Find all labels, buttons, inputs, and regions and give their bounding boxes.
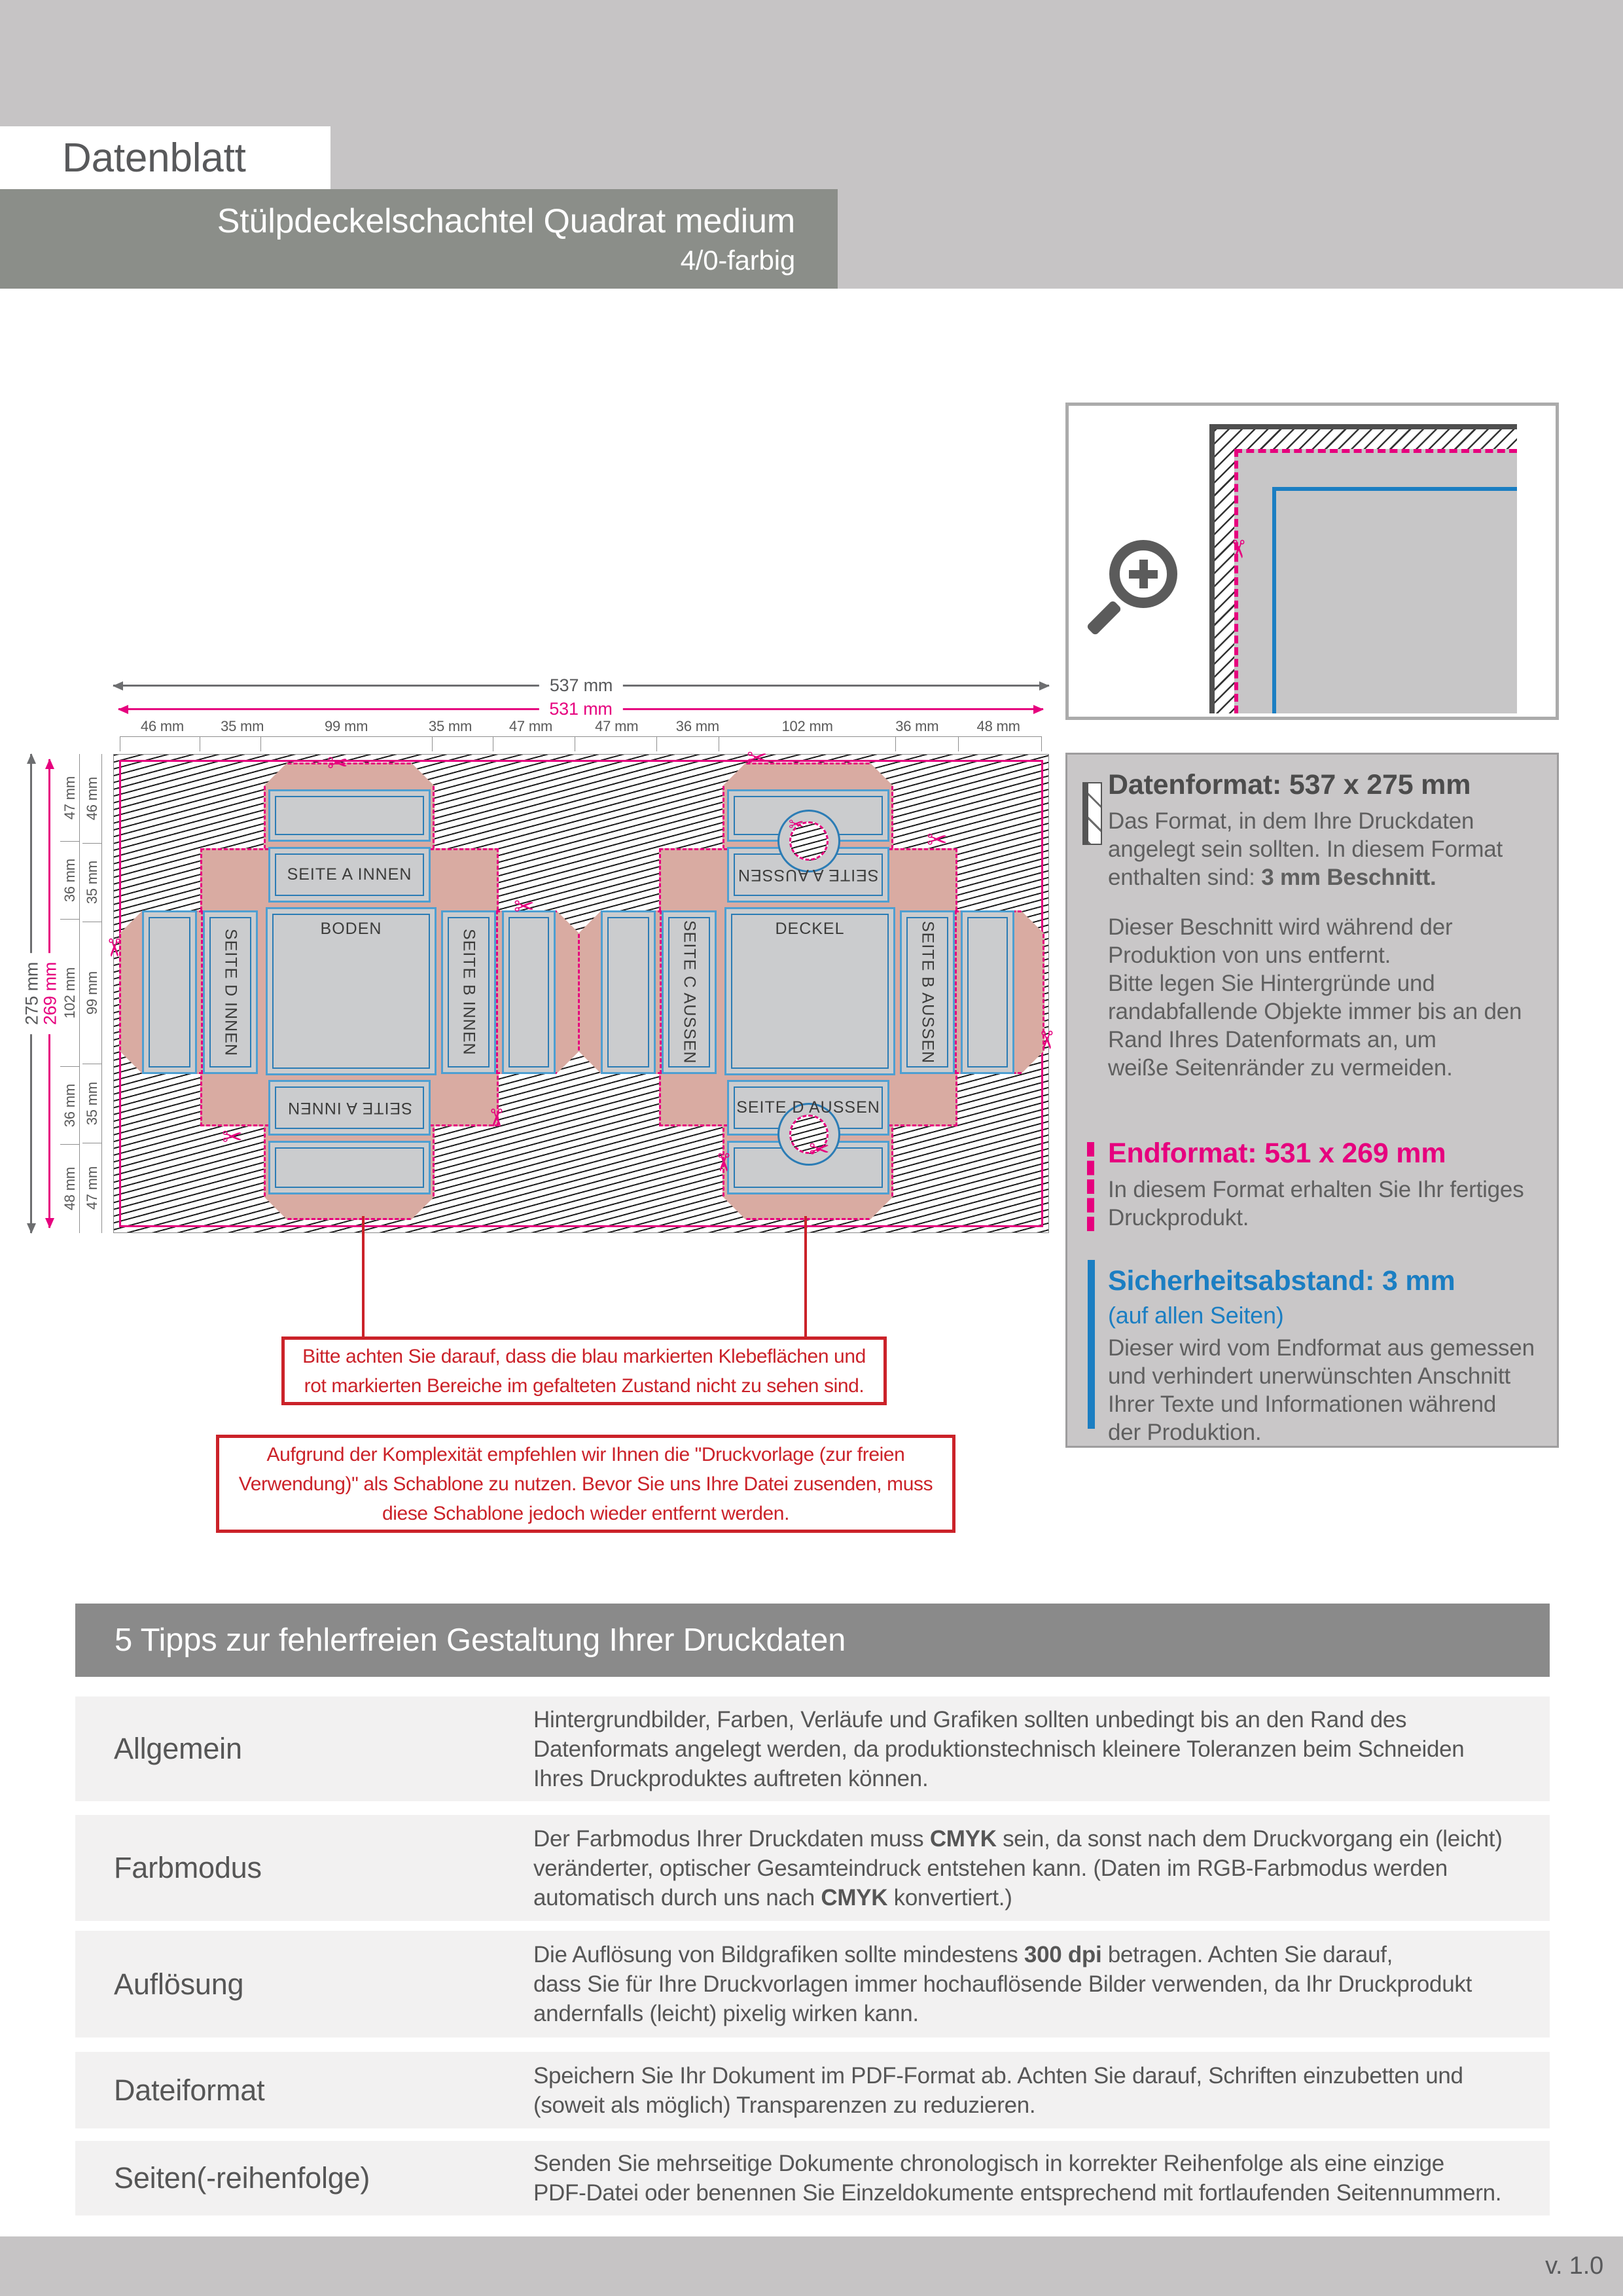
product-title: Stülpdeckelschachtel Quadrat medium: [217, 202, 795, 241]
row-height-labels-inner: 46 mm 35 mm 99 mm 35 mm 47 mm: [82, 754, 102, 1233]
datenformat-paragraph: Dieser Beschnitt wird während der Produk…: [1108, 913, 1540, 1082]
dim-total-height: 275 mm: [30, 754, 32, 1233]
dim-end-height-label: 269 mm: [41, 953, 61, 1034]
die-cut-diagram: SEITE A INNEN SEITE D INNEN BODEN SEITE …: [113, 754, 1049, 1233]
panel-label: SEITE D AUSSEN: [736, 1098, 880, 1117]
tip-row-dateiformat: Dateiformat Speichern Sie Ihr Dokument i…: [75, 2052, 1550, 2128]
sicherheitsabstand-body: Dieser wird vom Endformat aus gemessen u…: [1108, 1334, 1540, 1446]
col-width: 35 mm: [413, 718, 488, 736]
flap-panel: [961, 910, 1014, 1074]
tip-text: Hintergrundbilder, Farben, Verläufe und …: [533, 1705, 1464, 1793]
dim-total-height-label: 275 mm: [22, 953, 43, 1034]
col-width: 47 mm: [574, 718, 660, 736]
endformat-title: Endformat: 531 x 269 mm: [1108, 1138, 1446, 1170]
tip-label: Auflösung: [75, 1967, 533, 2001]
panel-label: SEITE B AUSSEN: [918, 921, 937, 1064]
sheet-label-box: Datenblatt: [0, 126, 330, 189]
dim-end-width-label: 531 mm: [539, 699, 622, 719]
bleed-corner-illustration: [1209, 424, 1517, 713]
col-width: 36 mm: [879, 718, 955, 736]
tip-label: Dateiformat: [75, 2073, 533, 2108]
row-height: 36 mm: [62, 1084, 79, 1127]
tips-banner: 5 Tipps zur fehlerfreien Gestaltung Ihre…: [75, 1604, 1550, 1677]
scissors-icon: ✂: [101, 937, 126, 958]
scissors-icon: ✂: [514, 894, 535, 919]
glue-warning-text: Bitte achten Sie darauf, dass die blau m…: [302, 1342, 866, 1401]
endformat-dash-icon: [1087, 1142, 1094, 1231]
glue-warning-box: Bitte achten Sie darauf, dass die blau m…: [281, 1336, 887, 1405]
template-warning-text: Aufgrund der Komplexität empfehlen wir I…: [239, 1440, 933, 1528]
panel-label: BODEN: [321, 920, 382, 939]
side-panel: SEITE B INNEN: [441, 910, 496, 1074]
scissors-icon: ✂: [711, 1152, 736, 1173]
row-height: 47 mm: [62, 776, 79, 819]
flap-panel: [268, 1141, 431, 1194]
endformat-body: In diesem Format erhalten Sie Ihr fertig…: [1108, 1175, 1540, 1232]
panel-label: SEITE C AUSSEN: [680, 920, 699, 1064]
row-height: 46 mm: [84, 777, 101, 820]
side-panel: SEITE C AUSSEN: [662, 910, 717, 1074]
datenformat-body: Das Format, in dem Ihre Druckdaten angel…: [1108, 807, 1540, 891]
panel-label: SEITE A INNEN: [287, 1098, 412, 1117]
flap-panel: [142, 910, 197, 1074]
bleed-zoom-detail-box: ✂: [1065, 403, 1559, 720]
safety-margin-line: [1272, 487, 1517, 713]
side-panel: SEITE B AUSSEN: [900, 910, 955, 1074]
col-width: 48 mm: [955, 718, 1042, 736]
tip-label: Seiten(-reihenfolge): [75, 2161, 533, 2195]
col-width: 99 mm: [280, 718, 413, 736]
tip-row-allgemein: Allgemein Hintergrundbilder, Farben, Ver…: [75, 1696, 1550, 1801]
tip-label: Farbmodus: [75, 1851, 533, 1885]
dim-end-width: 531 mm: [118, 708, 1043, 710]
column-width-labels: 46 mm 35 mm 99 mm 35 mm 47 mm 47 mm 36 m…: [120, 718, 1042, 736]
panel-label: SEITE D INNEN: [221, 929, 240, 1056]
dim-total-width: 537 mm: [113, 685, 1049, 687]
note-connector-line-left: [362, 1216, 365, 1336]
row-height: 47 mm: [84, 1166, 101, 1210]
tip-row-farbmodus: Farbmodus Der Farbmodus Ihrer Druckdaten…: [75, 1815, 1550, 1921]
col-width: 36 mm: [660, 718, 736, 736]
col-width: 46 mm: [120, 718, 205, 736]
flap-panel: [601, 910, 656, 1074]
row-height: 36 mm: [62, 859, 79, 902]
sicherheitsabstand-subtitle: (auf allen Seiten): [1108, 1302, 1284, 1329]
scissors-icon: ✂: [1034, 1030, 1059, 1050]
endformat-cut-line: [1234, 449, 1517, 713]
row-height-labels-outer: 47 mm 36 mm 102 mm 36 mm 48 mm: [60, 754, 80, 1233]
datenformat-body-bold: 3 mm Beschnitt.: [1261, 865, 1436, 890]
row-height: 48 mm: [62, 1167, 79, 1210]
scissors-icon: ✂: [484, 1107, 508, 1128]
tip-row-seitenreihenfolge: Seiten(-reihenfolge) Senden Sie mehrseit…: [75, 2141, 1550, 2215]
bleed-bar-icon: [1082, 782, 1102, 845]
safety-bar-icon: [1088, 1260, 1095, 1429]
flap-panel: [502, 910, 556, 1074]
scissors-icon: ✂: [327, 751, 348, 776]
row-height: 99 mm: [84, 971, 101, 1014]
dim-total-width-label: 537 mm: [539, 675, 623, 696]
scissors-icon: ✂: [789, 816, 804, 834]
row-height: 102 mm: [62, 967, 79, 1018]
datenformat-title: Datenformat: 537 x 275 mm: [1108, 769, 1471, 801]
side-panel: SEITE D INNEN: [203, 910, 258, 1074]
version-label: v. 1.0: [1545, 2252, 1623, 2280]
magnifier-handle: [1086, 600, 1122, 636]
tip-text: Der Farbmodus Ihrer Druckdaten muss CMYK…: [533, 1824, 1503, 1912]
scissors-icon: ✂: [927, 827, 948, 852]
side-panel: SEITE A INNEN: [268, 847, 431, 903]
format-info-panel: Datenformat: 537 x 275 mm Das Format, in…: [1065, 753, 1559, 1448]
center-panel: BODEN: [266, 907, 437, 1075]
scissors-icon: ✂: [809, 1137, 830, 1162]
col-width: 35 mm: [205, 718, 280, 736]
tip-label: Allgemein: [75, 1732, 533, 1766]
product-banner: Stülpdeckelschachtel Quadrat medium 4/0-…: [0, 189, 838, 289]
tip-text: Speichern Sie Ihr Dokument im PDF-Format…: [533, 2061, 1463, 2120]
sicherheitsabstand-title: Sicherheitsabstand: 3 mm: [1108, 1265, 1455, 1297]
scissors-icon: ✂: [1226, 539, 1251, 560]
scissors-icon: ✂: [222, 1124, 243, 1149]
flap-panel: [268, 789, 431, 842]
tip-text: Senden Sie mehrseitige Dokumente chronol…: [533, 2149, 1501, 2208]
template-warning-box: Aufgrund der Komplexität empfehlen wir I…: [216, 1435, 955, 1533]
col-width: 102 mm: [736, 718, 879, 736]
magnifier-plus-icon: [1109, 540, 1177, 608]
column-width-ticks: [120, 736, 1042, 751]
scissors-icon: ✂: [747, 745, 768, 770]
note-connector-line-right: [804, 1216, 807, 1336]
panel-label: SEITE B INNEN: [459, 929, 478, 1056]
page-title: Datenblatt: [0, 135, 246, 181]
tips-title: 5 Tipps zur fehlerfreien Gestaltung Ihre…: [75, 1622, 846, 1659]
row-height: 35 mm: [84, 861, 101, 904]
color-variant: 4/0-farbig: [681, 245, 795, 276]
footer-bar: v. 1.0: [0, 2236, 1623, 2296]
tip-row-aufloesung: Auflösung Die Auflösung von Bildgrafiken…: [75, 1931, 1550, 2037]
center-panel: DECKEL: [724, 907, 895, 1075]
panel-label: SEITE A AUSSEN: [738, 865, 878, 884]
row-height: 35 mm: [84, 1082, 101, 1125]
dim-end-height: 269 mm: [48, 759, 50, 1228]
panel-label: DECKEL: [775, 920, 844, 939]
col-width: 47 mm: [488, 718, 573, 736]
side-panel: SEITE A INNEN: [268, 1080, 431, 1136]
tip-text: Die Auflösung von Bildgrafiken sollte mi…: [533, 1940, 1472, 2028]
panel-label: SEITE A INNEN: [287, 865, 412, 884]
